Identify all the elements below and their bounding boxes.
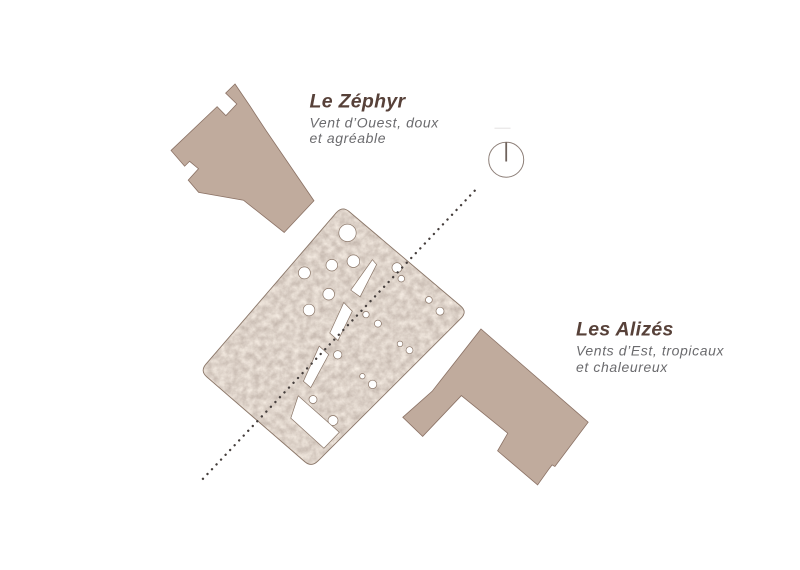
svg-text:Le Zéphyr: Le Zéphyr (310, 91, 407, 113)
svg-text:et agréable: et agréable (310, 130, 387, 146)
svg-text:Les Alizés: Les Alizés (576, 319, 674, 341)
svg-text:Vent d’Ouest, doux: Vent d’Ouest, doux (310, 114, 440, 130)
svg-text:et chaleureux: et chaleureux (576, 359, 668, 375)
svg-text:Vents d’Est, tropicaux: Vents d’Est, tropicaux (576, 343, 724, 359)
